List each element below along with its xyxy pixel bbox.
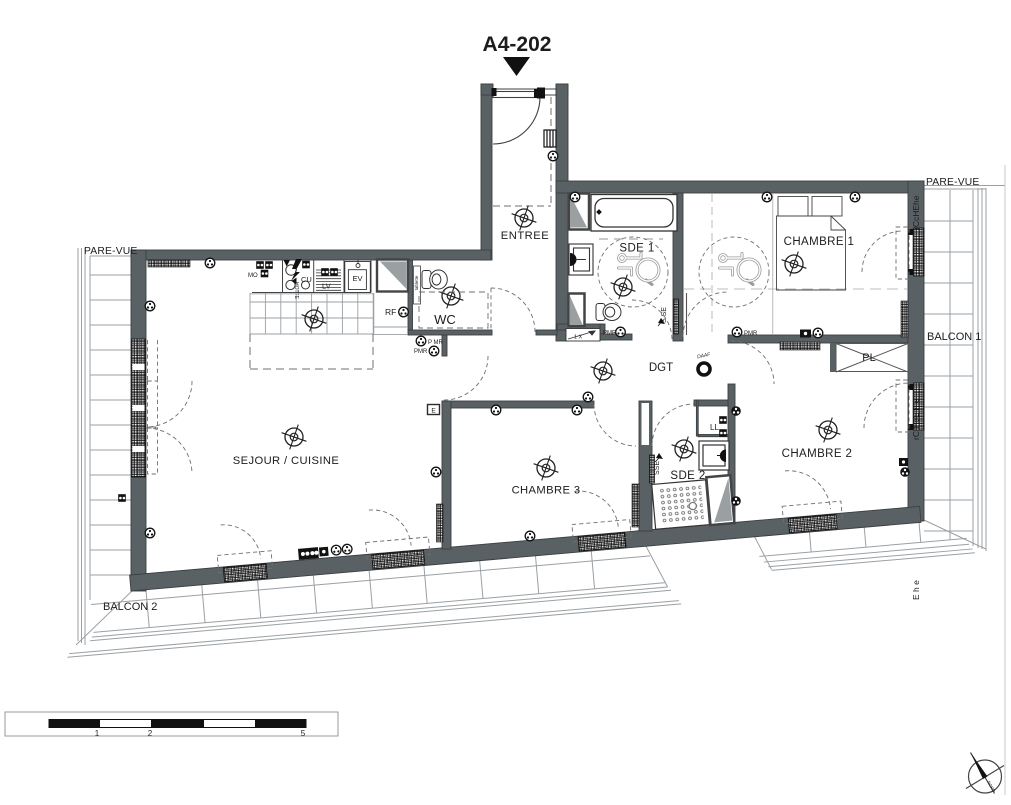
svg-text:DGT: DGT — [649, 362, 673, 374]
svg-text:1 X: 1 X — [574, 335, 583, 341]
svg-text:rCcHEhe: rCcHEhe — [911, 195, 921, 230]
svg-text:SSE: SSE — [654, 461, 661, 475]
svg-text:CU: CU — [301, 275, 312, 284]
svg-text:tablette: tablette — [414, 275, 419, 290]
svg-text:ENTREE: ENTREE — [501, 230, 549, 242]
svg-text:PMR: PMR — [414, 349, 428, 355]
svg-text:SEJOUR / CUISINE: SEJOUR / CUISINE — [233, 455, 339, 467]
svg-text:LV: LV — [322, 282, 331, 291]
svg-text:PMR: PMR — [603, 331, 617, 337]
svg-text:BALCON 1: BALCON 1 — [927, 331, 981, 343]
svg-text:PARE-VUE: PARE-VUE — [926, 177, 979, 188]
svg-text:BALCON 2: BALCON 2 — [103, 601, 157, 613]
svg-text:MO: MO — [248, 273, 258, 279]
svg-text:E: E — [431, 408, 436, 415]
svg-text:LL: LL — [710, 423, 719, 432]
svg-text:2: 2 — [148, 729, 153, 738]
svg-text:RF: RF — [385, 307, 396, 317]
svg-text:1: 1 — [95, 729, 100, 738]
svg-text:SDE 1: SDE 1 — [619, 243, 654, 255]
svg-text:5: 5 — [301, 729, 306, 738]
svg-text:WC: WC — [434, 312, 456, 327]
svg-text:rC HcE h e: rC HcE h e — [911, 398, 921, 440]
svg-text:CHAMBRE 2: CHAMBRE 2 — [782, 448, 853, 460]
svg-text:E h e: E h e — [911, 580, 921, 600]
svg-text:EV: EV — [353, 274, 363, 283]
svg-text:P MR: P MR — [428, 340, 444, 346]
svg-text:CHAMBRE 1: CHAMBRE 1 — [784, 236, 855, 248]
svg-text:CHAMBRE 3: CHAMBRE 3 — [512, 485, 581, 497]
svg-text:PL: PL — [862, 352, 875, 364]
svg-text:A4-202: A4-202 — [483, 33, 552, 56]
svg-text:PARE-VUE: PARE-VUE — [84, 246, 137, 257]
svg-text:PMR: PMR — [744, 331, 758, 337]
